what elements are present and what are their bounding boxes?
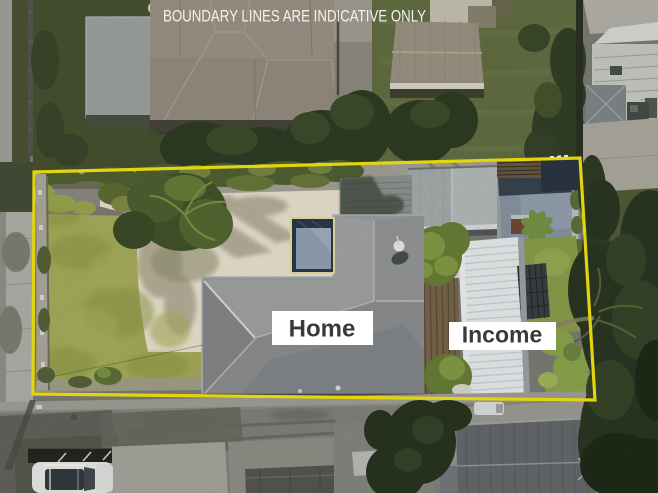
svg-text:Home: Home bbox=[289, 316, 356, 343]
svg-text:BOUNDARY LINES ARE INDICATIVE: BOUNDARY LINES ARE INDICATIVE ONLY bbox=[163, 7, 426, 26]
svg-text:Income: Income bbox=[462, 322, 543, 348]
